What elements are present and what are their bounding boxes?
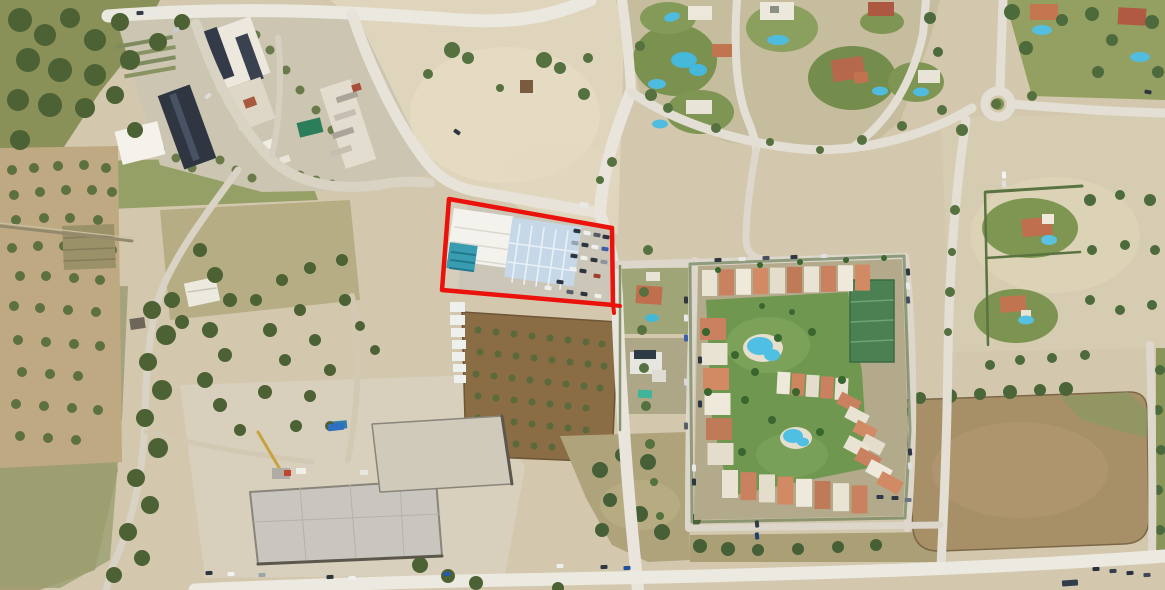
satellite-canvas	[0, 0, 1165, 590]
aerial-map-view	[0, 0, 1165, 590]
apartment-complex	[690, 255, 910, 522]
orchard-field-left	[0, 146, 122, 468]
